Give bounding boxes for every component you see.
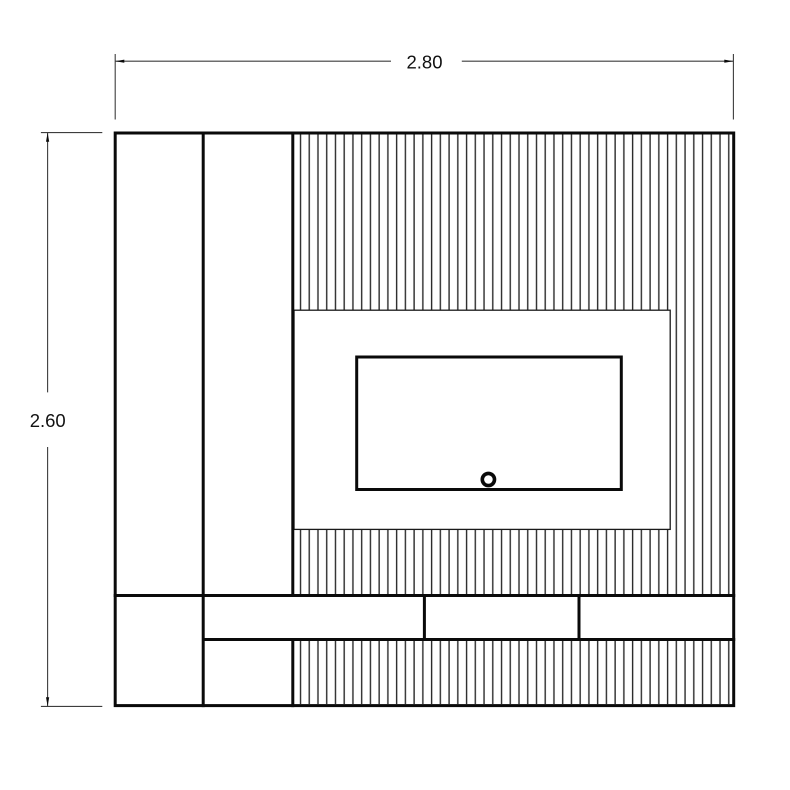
svg-text:2.80: 2.80 (406, 52, 442, 73)
svg-text:2.60: 2.60 (30, 410, 66, 431)
